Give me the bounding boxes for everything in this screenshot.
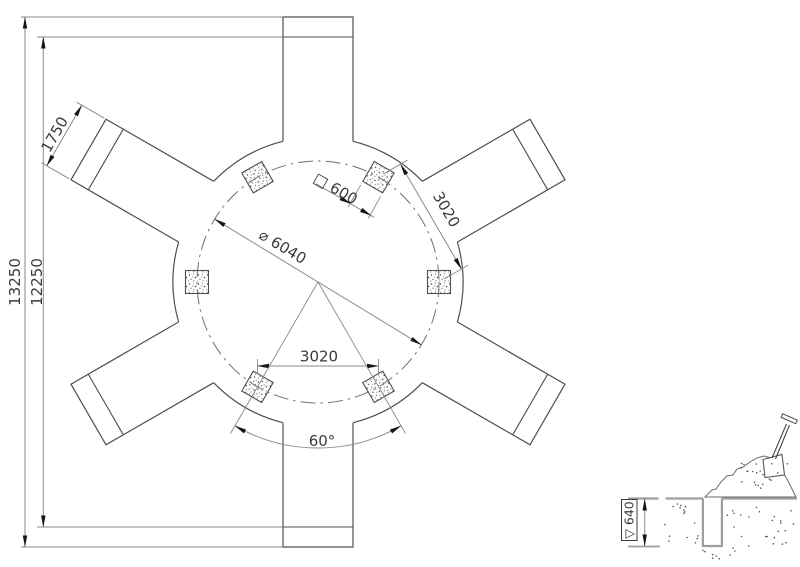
trench-detail: ▽ 640	[622, 414, 798, 560]
arm-upper-left	[71, 119, 214, 242]
drawing-sheet: 13250 12250 1750 □ 600 ⌀ 604	[0, 0, 800, 567]
shovel-shaft	[772, 424, 790, 459]
dim-chord-upper-right: 3020	[383, 160, 468, 279]
shovel	[763, 414, 797, 478]
depth-dimension: ▽ 640	[622, 499, 645, 546]
shovel-handle	[781, 414, 797, 424]
arm-lower-left-band	[88, 374, 123, 435]
dimensions: 13250 12250 1750 □ 600 ⌀ 604	[6, 17, 468, 547]
excavation-pit	[703, 499, 722, 547]
foundation-plan-drawing: 13250 12250 1750 □ 600 ⌀ 604	[0, 0, 800, 567]
arm-upper-left-band	[88, 129, 123, 190]
dim-chord-bottom: 3020	[258, 348, 379, 375]
arm-top	[283, 17, 353, 141]
dim-arm-width-label: 1750	[37, 113, 72, 155]
arm-lower-right	[422, 322, 565, 445]
arm-upper-right-band	[513, 129, 548, 190]
dim-inner-height-label: 12250	[28, 258, 46, 306]
dim-total-height-label: 13250	[6, 258, 24, 306]
dim-angle-label: 60°	[309, 432, 336, 450]
dim-chord-upper-right-label: 3020	[429, 188, 464, 230]
dim-inner-height: 12250	[28, 37, 283, 527]
dim-footing-size-label: □ 600	[310, 169, 360, 208]
arm-lower-left	[71, 322, 214, 445]
arm-upper-right	[422, 119, 565, 242]
depth-label: ▽ 640	[622, 501, 637, 538]
dim-pitch-circle-label: ⌀ 6040	[256, 226, 310, 268]
arm-lower-right-band	[513, 374, 548, 435]
dim-chord-bottom-label: 3020	[300, 348, 338, 366]
dim-total-height: 13250	[6, 17, 283, 547]
